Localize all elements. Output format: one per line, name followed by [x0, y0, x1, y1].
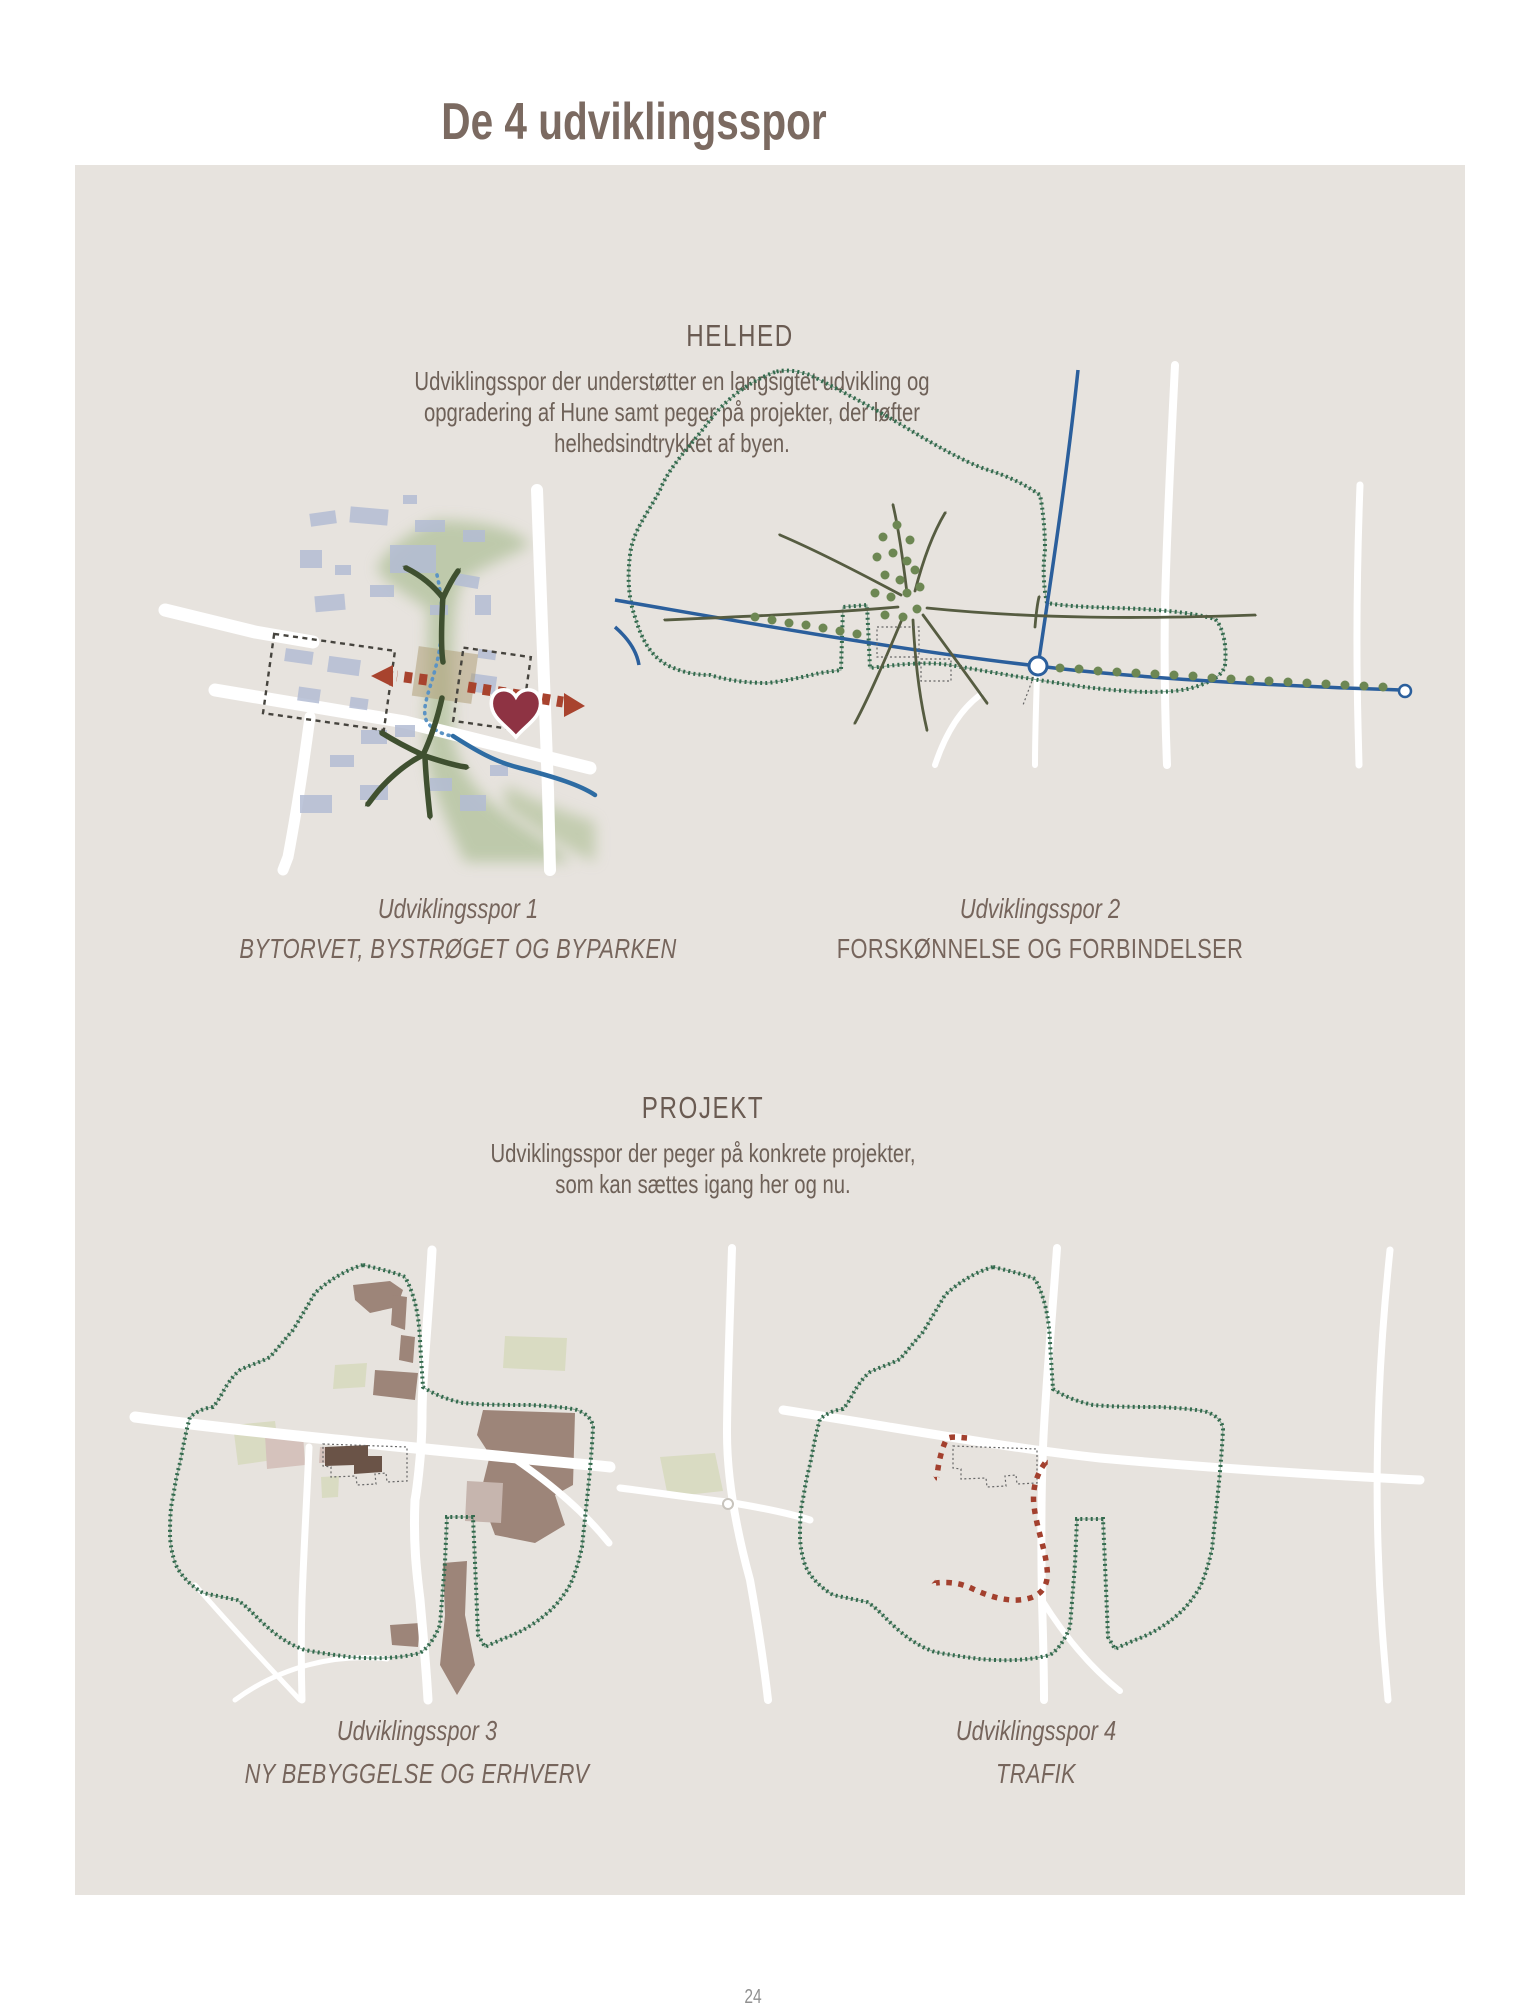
map-udviklingsspor-4 — [620, 1195, 1420, 1700]
caption-map-4: Udviklingsspor 4 — [802, 1715, 1270, 1747]
page: { "page": { "title": "De 4 udviklingsspo… — [0, 0, 1540, 2000]
paragraph-line: Udviklingsspor der peger på konkrete pro… — [391, 1138, 1015, 1169]
map-udviklingsspor-3 — [135, 1195, 610, 1700]
section-heading-projekt: PROJEKT — [469, 1090, 937, 1126]
section-heading-helhed: HELHED — [506, 318, 974, 354]
caption-map-1: Udviklingsspor 1 — [224, 893, 692, 925]
subtitle-map-2: FORSKØNNELSE OG FORBINDELSER — [806, 933, 1274, 965]
page-number: 24 — [714, 1986, 792, 2009]
caption-map-3: Udviklingsspor 3 — [183, 1715, 651, 1747]
blue-roads — [615, 370, 1403, 690]
caption-map-2: Udviklingsspor 2 — [806, 893, 1274, 925]
map-udviklingsspor-2 — [615, 365, 1415, 765]
road-junction-node — [723, 1499, 733, 1509]
map-udviklingsspor-1 — [165, 490, 595, 870]
subtitle-map-4: TRAFIK — [802, 1758, 1270, 1790]
dark-building — [325, 1445, 382, 1474]
roads — [135, 1250, 610, 1700]
section-paragraph-projekt: Udviklingsspor der peger på konkrete pro… — [391, 1138, 1015, 1200]
page-title: De 4 udviklingsspor — [322, 92, 946, 152]
roads — [620, 1248, 1420, 1700]
subtitle-map-1: BYTORVET, BYSTRØGET OG BYPARKEN — [224, 933, 692, 965]
heart-icon — [491, 690, 540, 737]
traffic-arrows-red — [936, 1437, 1047, 1600]
field-pale-green — [660, 1453, 723, 1497]
roundabout — [1029, 657, 1047, 675]
roads — [935, 365, 1360, 765]
town-boundary — [629, 371, 1226, 692]
road-end-node — [1399, 685, 1411, 697]
subtitle-map-3: NY BEBYGGELSE OG ERHVERV — [183, 1758, 651, 1790]
